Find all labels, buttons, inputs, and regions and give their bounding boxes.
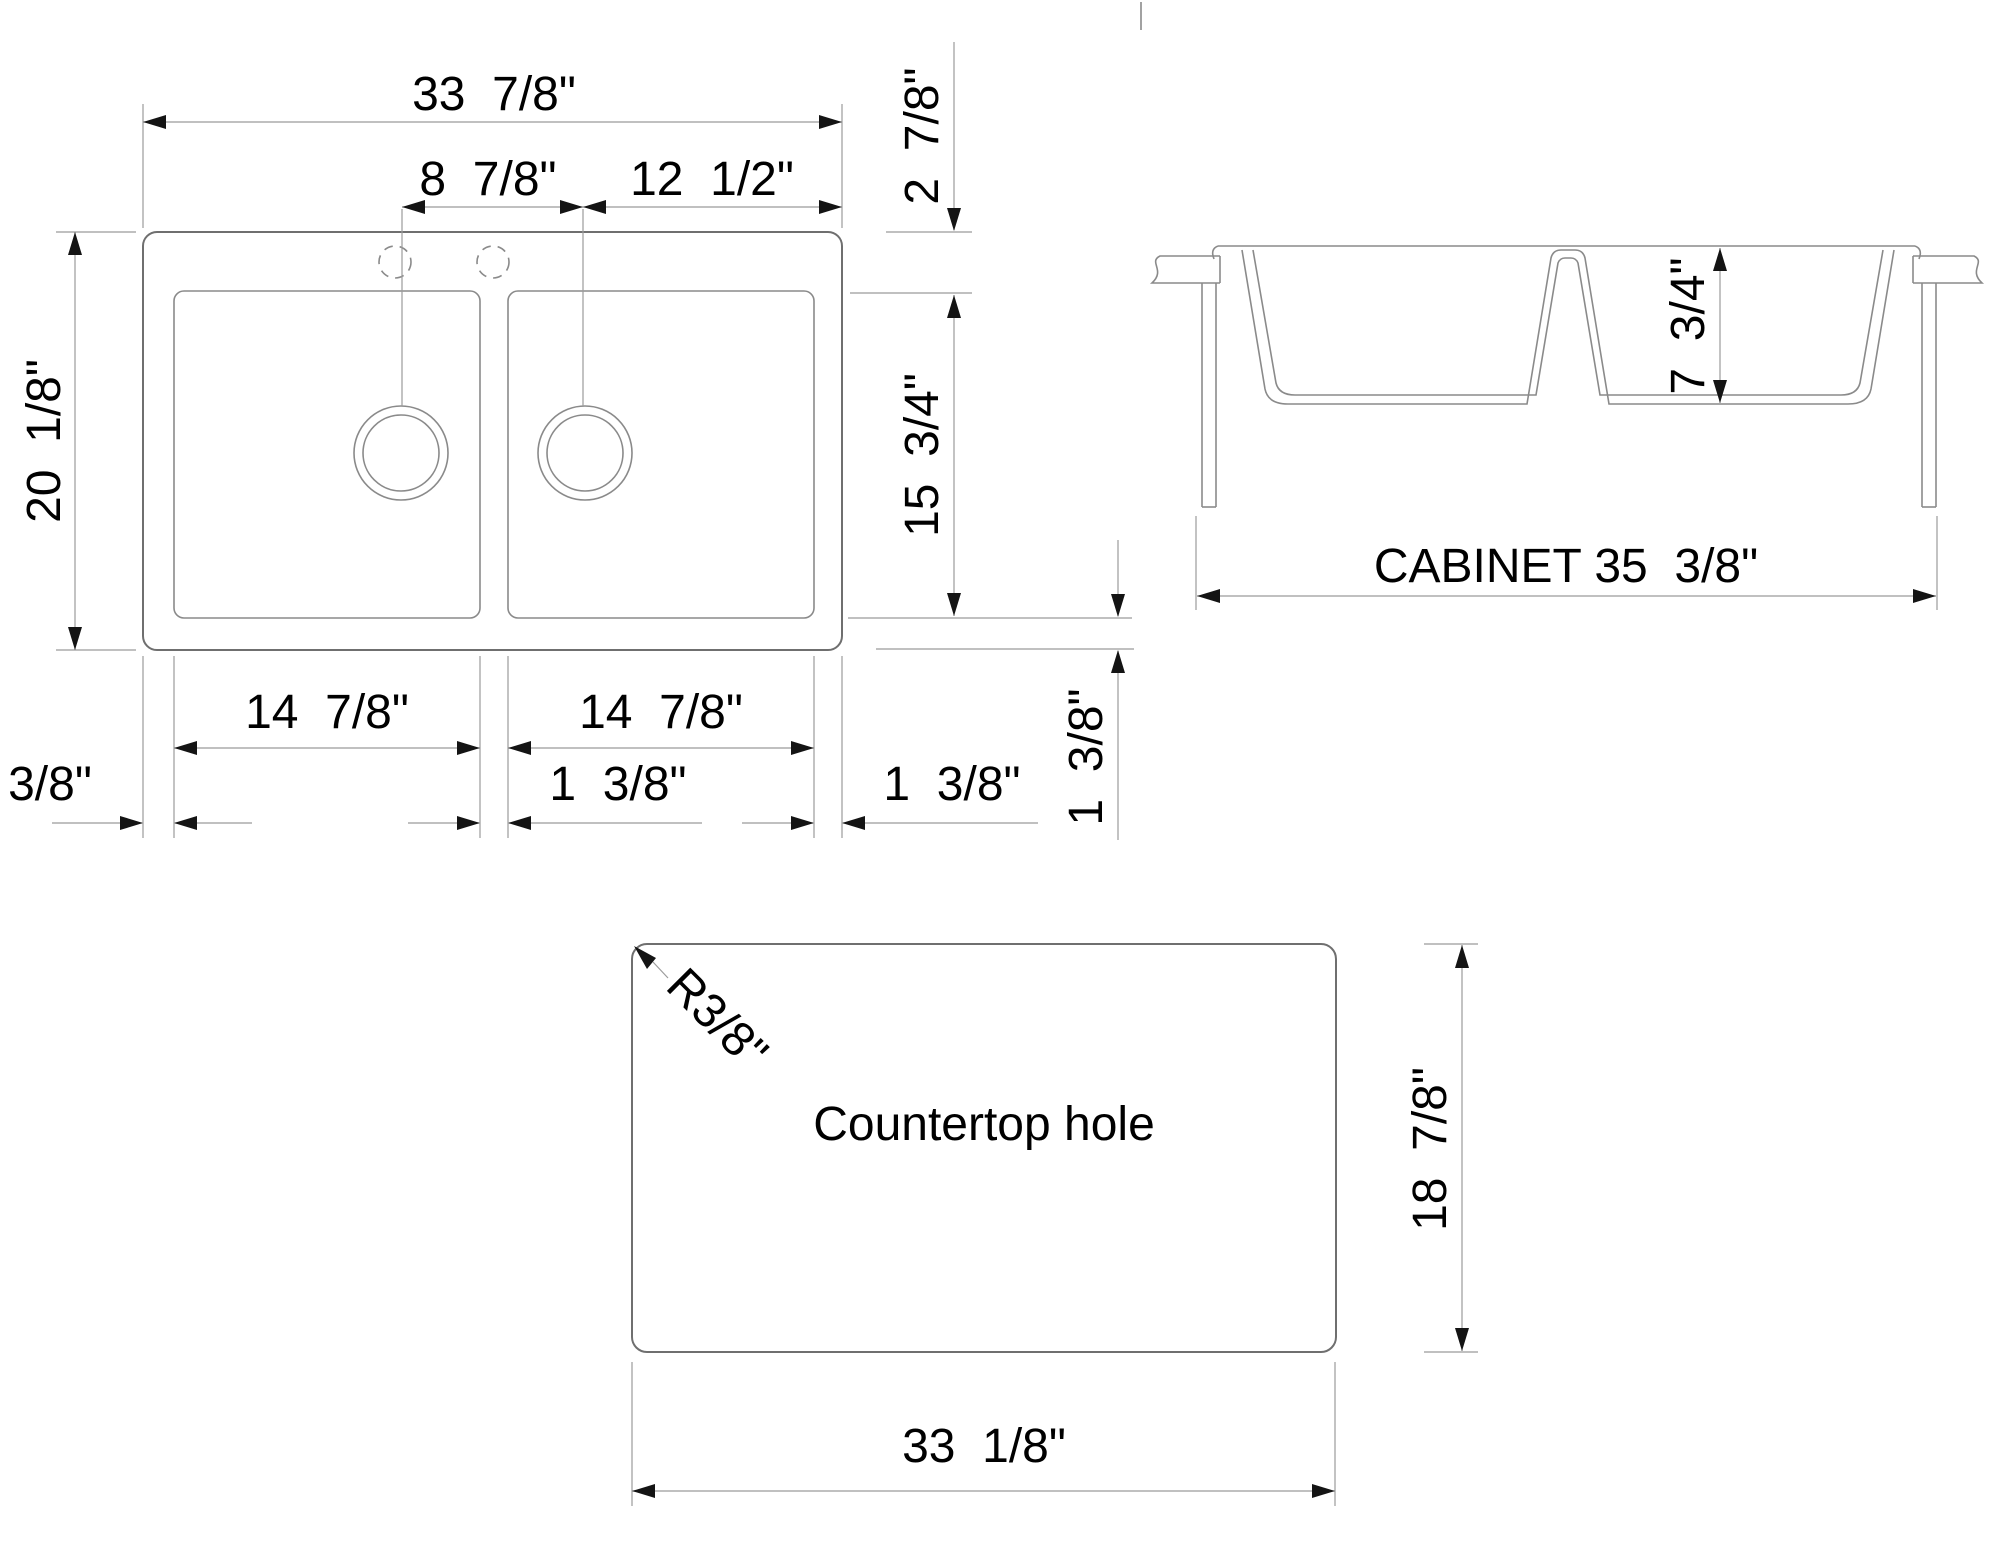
- drain-to-edge-label: 12 1/2": [630, 153, 794, 206]
- divider-width-label: 1 3/8": [549, 758, 686, 811]
- left-rim-label: 3/8": [8, 758, 92, 811]
- right-drain-outer-circle: [538, 406, 632, 500]
- bowl-depth-label: 7 3/4": [1662, 257, 1715, 394]
- arrowhead-up-icon: [1713, 248, 1727, 271]
- faucet-hole-left-dashed-circle: [379, 246, 411, 278]
- arrowhead-down-icon: [1111, 594, 1125, 617]
- arrowhead-left-icon: [508, 816, 531, 830]
- arrowhead-right-icon: [1913, 589, 1936, 603]
- bottom-rim-label: 1 3/8": [1060, 688, 1113, 825]
- arrowhead-up-icon: [947, 295, 961, 318]
- arrowhead-right-icon: [791, 741, 814, 755]
- left-bowl-width-label: 14 7/8": [245, 686, 409, 739]
- cabinet-width-label: CABINET 35 3/8": [1374, 540, 1758, 593]
- drawing-canvas: 33 7/8" 8 7/8" 12 1/2" 20 1/8" 2 7/8" 15…: [0, 0, 2000, 1550]
- right-rim-label: 1 3/8": [883, 758, 1020, 811]
- arrowhead-left-icon: [842, 816, 865, 830]
- corner-radius-label: R3/8": [656, 958, 777, 1079]
- left-drain-outer-circle: [354, 406, 448, 500]
- countertop-hole-view: R3/8" Countertop hole 18 7/8" 33 1/8": [632, 944, 1478, 1506]
- right-drain-inner-circle: [547, 415, 623, 491]
- arrowhead-left-icon: [143, 115, 166, 129]
- radius-leader-arrowhead-icon: [634, 946, 656, 969]
- faucet-to-drain-label: 8 7/8": [419, 153, 556, 206]
- arrowhead-right-icon: [819, 200, 842, 214]
- bowl-front-to-back-label: 15 3/4": [896, 373, 949, 537]
- overall-depth-label: 20 1/8": [18, 359, 71, 523]
- arrowhead-down-icon: [1713, 380, 1727, 403]
- sink-spec-drawing: 33 7/8" 8 7/8" 12 1/2" 20 1/8" 2 7/8" 15…: [0, 0, 2000, 1550]
- arrowhead-down-icon: [947, 593, 961, 616]
- right-countertop-break: [1913, 256, 1982, 283]
- radius-leader-line: [653, 962, 668, 978]
- bowl-profile-outer: [1242, 250, 1894, 404]
- front-section-view: 7 3/4" CABINET 35 3/8": [1152, 246, 1982, 610]
- overall-width-label: 33 7/8": [412, 68, 576, 121]
- sink-outer-rim-outline: [143, 232, 842, 650]
- bowl-profile-inner: [1253, 250, 1883, 395]
- rim-right-edge: [1915, 246, 1920, 259]
- arrowhead-down-icon: [947, 208, 961, 231]
- left-drain-inner-circle: [363, 415, 439, 491]
- arrowhead-left-icon: [508, 741, 531, 755]
- arrowhead-right-icon: [819, 115, 842, 129]
- rim-left-edge: [1213, 246, 1218, 259]
- arrowhead-left-icon: [174, 816, 197, 830]
- arrowhead-right-icon: [1312, 1484, 1335, 1498]
- arrowhead-left-icon: [583, 200, 606, 214]
- arrowhead-left-icon: [632, 1484, 655, 1498]
- sink-left-bowl-outline: [174, 291, 480, 618]
- hole-width-label: 33 1/8": [902, 1420, 1066, 1473]
- arrowhead-left-icon: [174, 741, 197, 755]
- arrowhead-up-icon: [1111, 650, 1125, 673]
- top-rim-label: 2 7/8": [896, 67, 949, 204]
- arrowhead-down-icon: [1455, 1328, 1469, 1351]
- hole-height-label: 18 7/8": [1404, 1067, 1457, 1231]
- arrowhead-right-icon: [457, 741, 480, 755]
- arrowhead-right-icon: [791, 816, 814, 830]
- left-countertop-break: [1152, 256, 1220, 283]
- arrowhead-right-icon: [457, 816, 480, 830]
- arrowhead-left-icon: [1197, 589, 1220, 603]
- arrowhead-up-icon: [68, 232, 82, 255]
- faucet-hole-right-dashed-circle: [477, 246, 509, 278]
- sink-right-bowl-outline: [508, 291, 814, 618]
- arrowhead-right-icon: [560, 200, 583, 214]
- arrowhead-right-icon: [120, 816, 143, 830]
- arrowhead-down-icon: [68, 627, 82, 650]
- right-bowl-width-label: 14 7/8": [579, 686, 743, 739]
- plan-view: 33 7/8" 8 7/8" 12 1/2" 20 1/8" 2 7/8" 15…: [8, 42, 1134, 840]
- arrowhead-up-icon: [1455, 945, 1469, 968]
- countertop-hole-label: Countertop hole: [813, 1098, 1155, 1151]
